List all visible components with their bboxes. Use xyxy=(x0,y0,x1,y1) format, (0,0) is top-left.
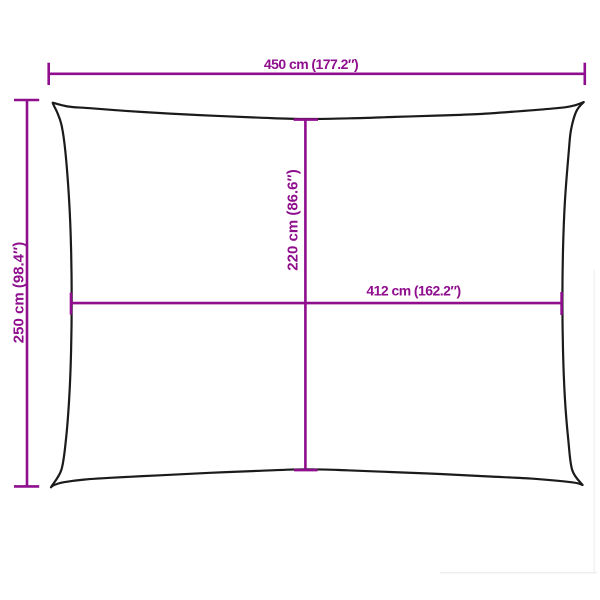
svg-text:450 cm (177.2″): 450 cm (177.2″) xyxy=(264,56,358,72)
svg-text:220 cm (86.6″): 220 cm (86.6″) xyxy=(285,169,302,270)
svg-text:412 cm (162.2″): 412 cm (162.2″) xyxy=(366,283,460,299)
svg-text:250 cm (98.4″): 250 cm (98.4″) xyxy=(10,242,27,343)
